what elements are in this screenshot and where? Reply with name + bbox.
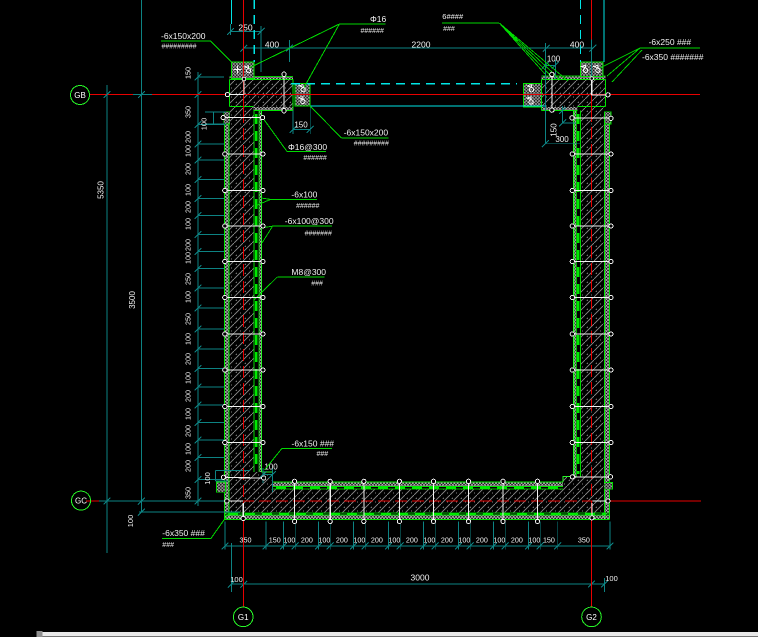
svg-text:200: 200 [301, 536, 313, 545]
svg-text:100: 100 [493, 536, 505, 545]
svg-text:200: 200 [371, 536, 383, 545]
svg-text:-6x150x200: -6x150x200 [344, 128, 389, 138]
svg-text:100: 100 [184, 184, 193, 196]
svg-text:250: 250 [184, 313, 193, 325]
svg-text:100: 100 [388, 536, 400, 545]
svg-text:2200: 2200 [412, 39, 431, 49]
svg-text:350: 350 [578, 536, 590, 545]
svg-text:GB: GB [74, 91, 86, 100]
svg-text:200: 200 [511, 536, 523, 545]
svg-text:###: ### [311, 280, 323, 287]
svg-text:100: 100 [283, 536, 295, 545]
svg-text:######: ###### [296, 203, 319, 210]
svg-text:G2: G2 [586, 613, 597, 622]
svg-text:100: 100 [184, 218, 193, 230]
svg-text:200: 200 [184, 201, 193, 213]
svg-text:100: 100 [200, 118, 209, 131]
svg-text:350: 350 [184, 487, 193, 499]
svg-text:200: 200 [336, 536, 348, 545]
svg-text:######: ###### [303, 155, 326, 162]
svg-text:100: 100 [184, 291, 193, 303]
svg-text:G1: G1 [238, 613, 249, 622]
svg-text:#######: ####### [305, 230, 332, 237]
svg-text:100: 100 [353, 536, 365, 545]
svg-text:3000: 3000 [411, 573, 430, 583]
svg-text:Φ16@300: Φ16@300 [288, 142, 327, 152]
svg-text:250: 250 [184, 273, 193, 285]
svg-text:100: 100 [184, 443, 193, 455]
svg-text:100: 100 [423, 536, 435, 545]
svg-text:5350: 5350 [97, 181, 106, 199]
svg-text:100: 100 [203, 472, 212, 485]
svg-text:350: 350 [240, 536, 252, 545]
svg-text:100: 100 [184, 333, 193, 345]
svg-text:M8@300: M8@300 [291, 267, 326, 277]
svg-text:100: 100 [184, 372, 193, 384]
svg-text:-6x100: -6x100 [291, 190, 317, 200]
svg-text:300: 300 [555, 135, 569, 144]
svg-text:150: 150 [184, 67, 193, 79]
svg-text:200: 200 [184, 239, 193, 251]
svg-text:200: 200 [184, 390, 193, 402]
svg-text:200: 200 [406, 536, 418, 545]
svg-text:200: 200 [184, 353, 193, 365]
svg-text:###: ### [443, 26, 455, 33]
svg-text:###: ### [317, 451, 329, 458]
svg-text:-6x250 ###: -6x250 ### [649, 37, 692, 47]
svg-text:150: 150 [294, 121, 308, 130]
svg-text:350: 350 [184, 106, 193, 118]
svg-text:100: 100 [458, 536, 470, 545]
svg-text:400: 400 [265, 39, 279, 49]
svg-text:-6x350 #######: -6x350 ####### [642, 52, 704, 62]
svg-text:200: 200 [184, 425, 193, 437]
svg-text:Φ16: Φ16 [370, 14, 387, 24]
svg-text:6####: 6#### [442, 12, 464, 21]
svg-text:150: 150 [269, 536, 281, 545]
svg-text:-6x150x200: -6x150x200 [161, 31, 206, 41]
svg-text:100: 100 [230, 575, 243, 584]
svg-text:###: ### [162, 542, 174, 549]
svg-text:100: 100 [528, 536, 540, 545]
svg-text:100: 100 [184, 408, 193, 420]
svg-text:100: 100 [547, 54, 561, 63]
svg-text:250: 250 [238, 22, 252, 32]
svg-text:#########: ######### [354, 140, 389, 147]
svg-text:100: 100 [264, 462, 278, 471]
svg-text:100: 100 [184, 145, 193, 157]
svg-text:#########: ######### [162, 44, 197, 51]
svg-text:100: 100 [126, 515, 135, 528]
svg-text:400: 400 [570, 39, 584, 49]
svg-text:150: 150 [543, 536, 555, 545]
svg-text:200: 200 [184, 131, 193, 143]
svg-text:3500: 3500 [128, 291, 137, 309]
svg-text:GC: GC [75, 497, 87, 506]
svg-text:200: 200 [184, 163, 193, 175]
svg-text:200: 200 [184, 460, 193, 472]
svg-text:-6x100@300: -6x100@300 [285, 216, 334, 226]
svg-text:######: ###### [361, 28, 384, 35]
svg-text:-6x150 ###: -6x150 ### [292, 439, 335, 449]
svg-text:100: 100 [318, 536, 330, 545]
svg-text:200: 200 [476, 536, 488, 545]
svg-text:100: 100 [184, 252, 193, 264]
svg-text:100: 100 [605, 574, 618, 583]
svg-text:200: 200 [441, 536, 453, 545]
svg-text:-6x350 ###: -6x350 ### [162, 528, 205, 538]
